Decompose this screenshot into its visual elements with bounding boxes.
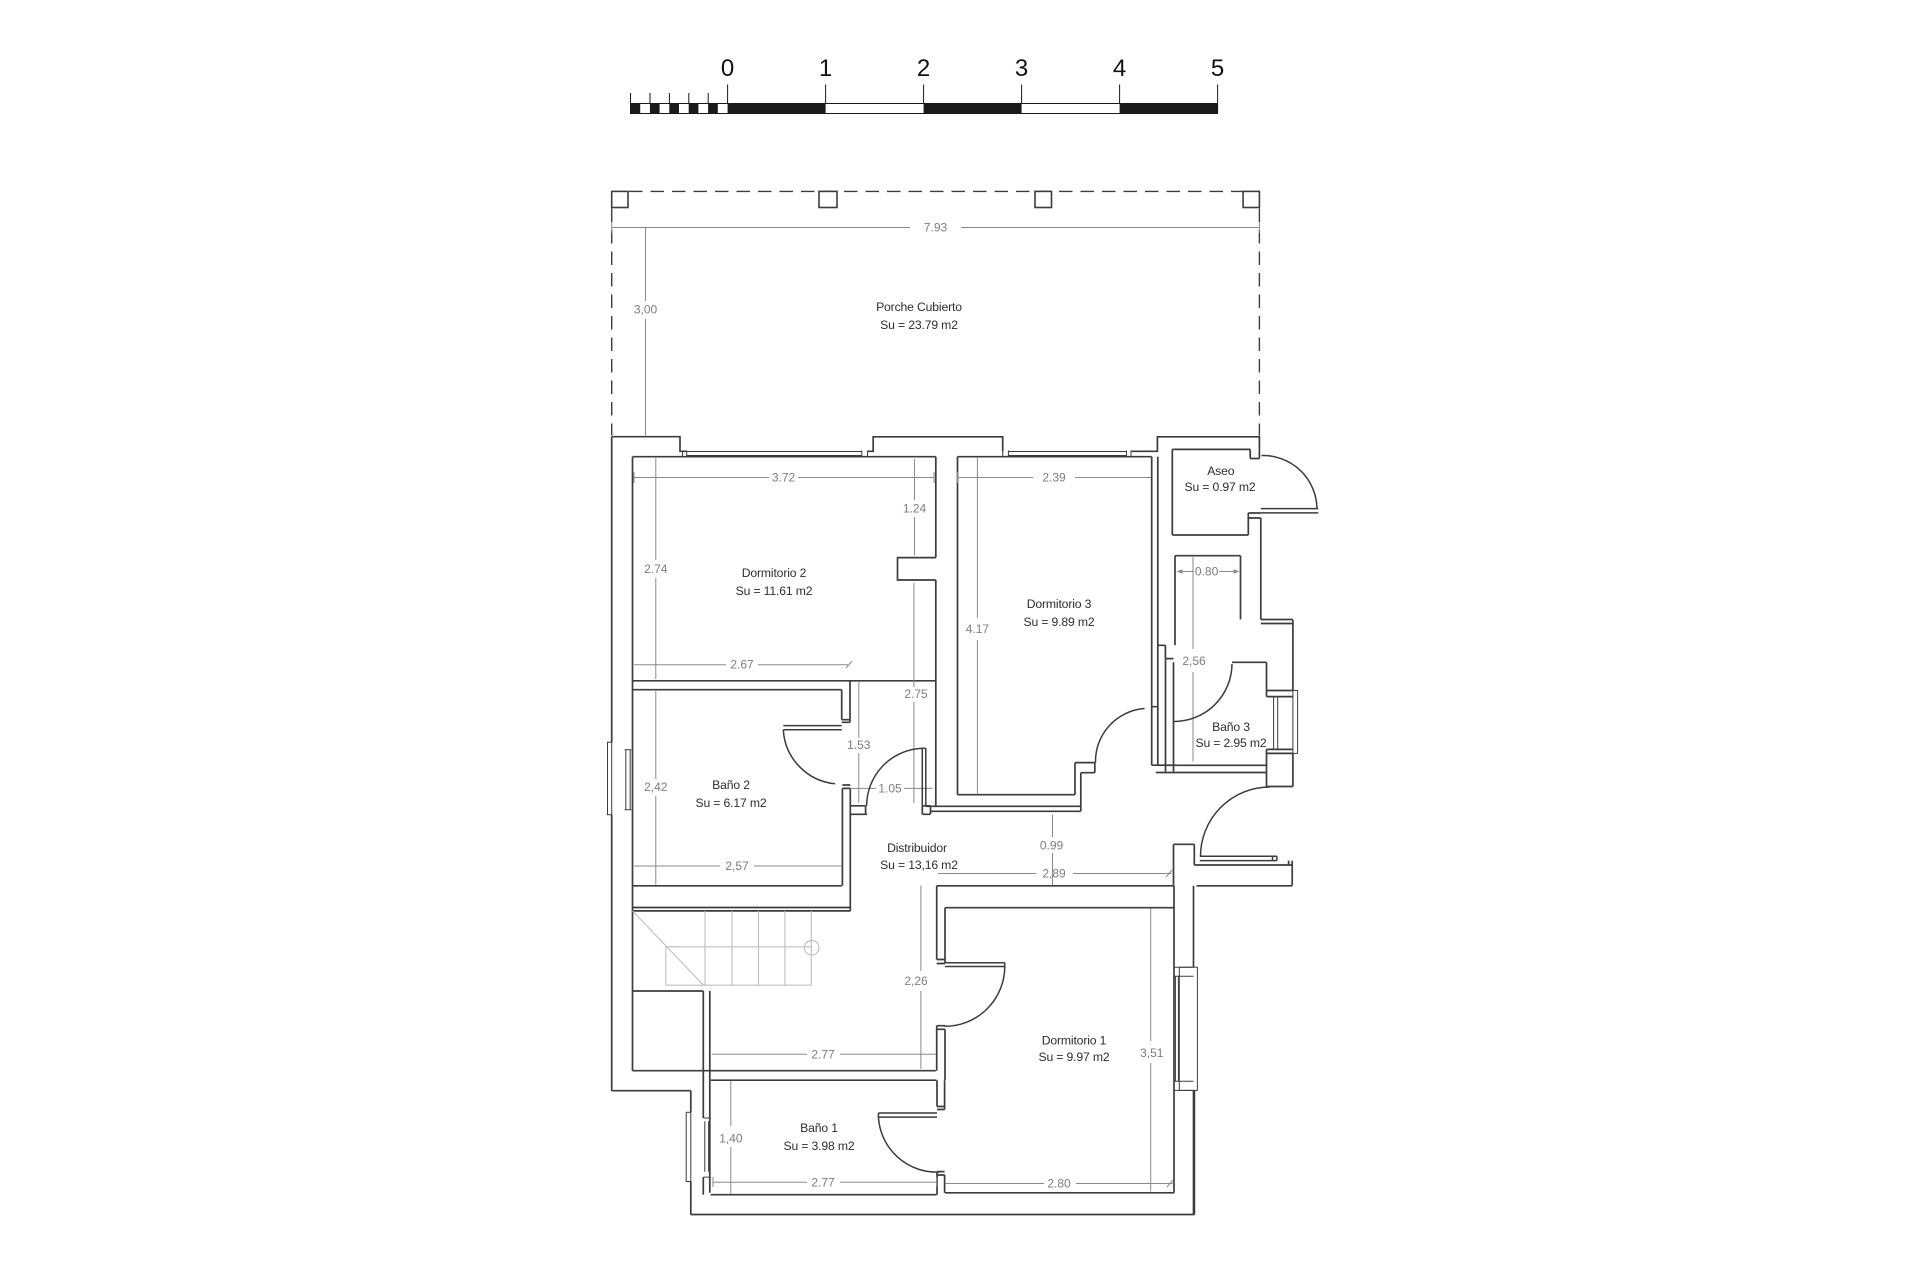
svg-text:1.05: 1.05: [878, 782, 902, 796]
svg-text:2,57: 2,57: [725, 859, 749, 873]
svg-text:2,56: 2,56: [1182, 654, 1206, 668]
svg-text:2.75: 2.75: [904, 687, 928, 701]
svg-text:Baño 3: Baño 3: [1212, 720, 1250, 734]
svg-text:1,40: 1,40: [719, 1132, 743, 1146]
svg-text:Su = 6.17 m2: Su = 6.17 m2: [695, 796, 766, 810]
svg-text:Su = 2.95 m2: Su = 2.95 m2: [1195, 736, 1266, 750]
svg-text:Dormitorio 1: Dormitorio 1: [1042, 1034, 1107, 1048]
svg-text:1: 1: [819, 55, 832, 82]
svg-text:Su = 9.97 m2: Su = 9.97 m2: [1038, 1050, 1109, 1064]
svg-text:Baño 1: Baño 1: [800, 1121, 838, 1135]
svg-text:0.80: 0.80: [1195, 565, 1219, 579]
svg-text:4.17: 4.17: [966, 622, 990, 636]
svg-text:Su = 0.97 m2: Su = 0.97 m2: [1184, 480, 1255, 494]
svg-text:2: 2: [917, 55, 930, 82]
svg-text:2,89: 2,89: [1042, 867, 1066, 881]
svg-text:0: 0: [721, 55, 734, 82]
svg-text:3,00: 3,00: [634, 303, 658, 317]
svg-text:Distribuidor: Distribuidor: [887, 841, 947, 855]
svg-text:1.24: 1.24: [903, 502, 927, 516]
svg-text:3,51: 3,51: [1140, 1046, 1164, 1060]
svg-text:2.80: 2.80: [1047, 1177, 1071, 1191]
svg-text:2.74: 2.74: [644, 562, 668, 576]
svg-text:0.99: 0.99: [1040, 839, 1064, 853]
svg-text:2.77: 2.77: [811, 1047, 835, 1061]
svg-text:3: 3: [1015, 55, 1028, 82]
svg-text:Su = 9.89 m2: Su = 9.89 m2: [1023, 615, 1094, 629]
svg-text:Baño 2: Baño 2: [712, 778, 750, 792]
svg-text:4: 4: [1113, 55, 1126, 82]
svg-text:Su = 3.98 m2: Su = 3.98 m2: [783, 1139, 854, 1153]
svg-text:2,26: 2,26: [904, 974, 928, 988]
svg-text:5: 5: [1211, 55, 1224, 82]
svg-text:1.53: 1.53: [847, 738, 871, 752]
svg-text:2.77: 2.77: [811, 1176, 835, 1190]
svg-text:Su = 11.61 m2: Su = 11.61 m2: [736, 584, 813, 598]
svg-text:2.39: 2.39: [1042, 471, 1066, 485]
svg-text:Su = 23.79 m2: Su = 23.79 m2: [880, 318, 958, 332]
svg-text:Su = 13,16 m2: Su = 13,16 m2: [880, 858, 958, 872]
svg-text:Aseo: Aseo: [1207, 464, 1235, 478]
svg-text:3.72: 3.72: [772, 471, 796, 485]
svg-text:Porche Cubierto: Porche Cubierto: [876, 300, 962, 314]
svg-text:Dormitorio 2: Dormitorio 2: [742, 566, 807, 580]
svg-text:Dormitorio 3: Dormitorio 3: [1027, 597, 1092, 611]
svg-text:2,42: 2,42: [644, 780, 668, 794]
svg-text:2.67: 2.67: [730, 658, 754, 672]
svg-text:7.93: 7.93: [924, 221, 948, 235]
